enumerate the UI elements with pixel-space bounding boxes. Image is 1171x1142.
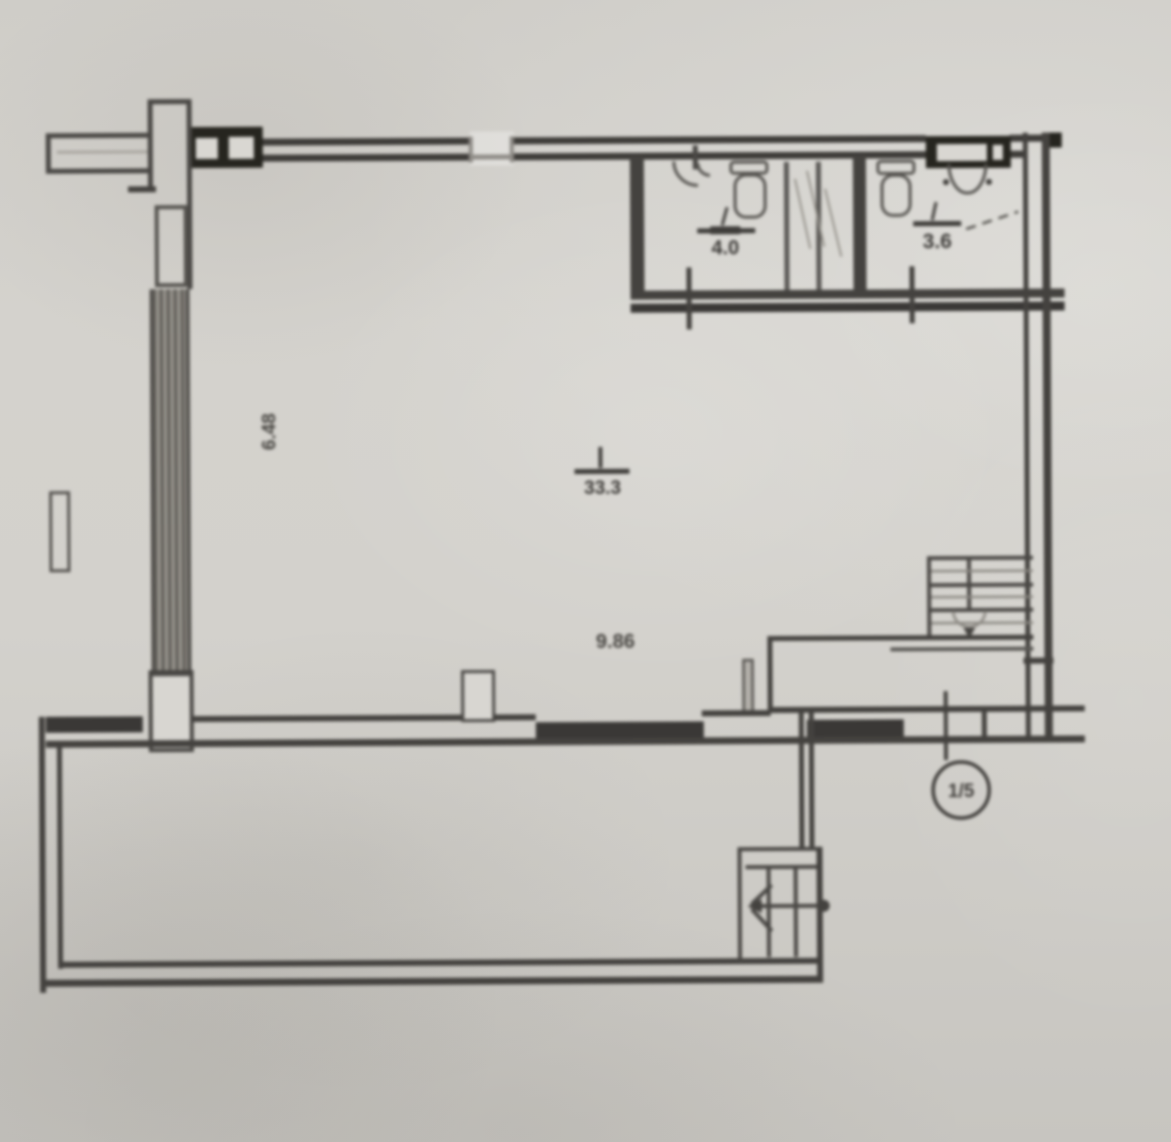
svg-text:6.48: 6.48 [259, 413, 280, 450]
svg-text:3.6: 3.6 [923, 230, 952, 253]
svg-text:1/5: 1/5 [948, 781, 975, 802]
svg-text:4.0: 4.0 [711, 237, 739, 259]
svg-text:9.86: 9.86 [596, 631, 635, 653]
svg-text:33.3: 33.3 [584, 478, 621, 499]
